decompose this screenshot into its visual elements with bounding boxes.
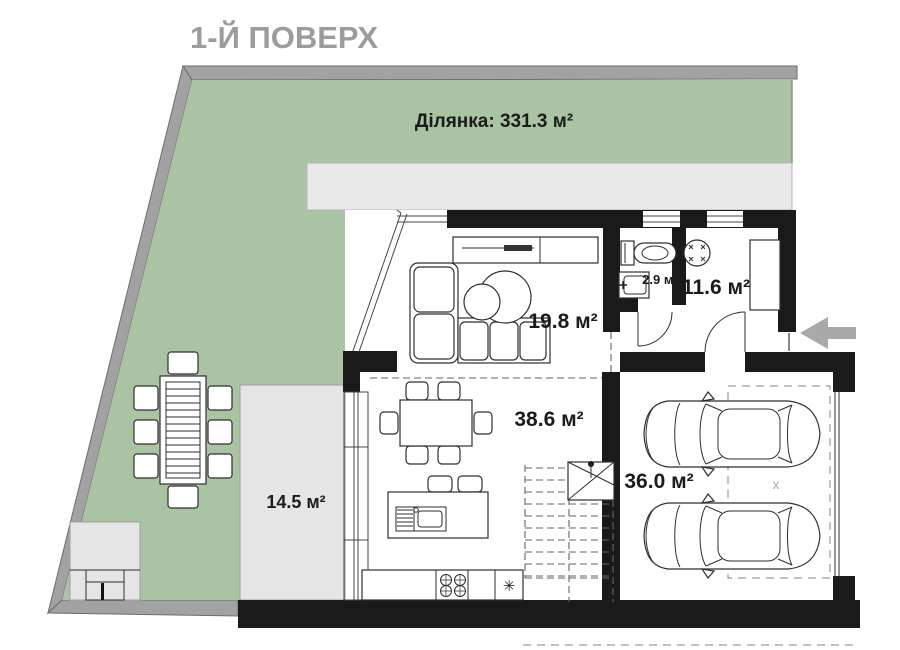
plot-area-label: Ділянка: 331.3 м² <box>415 111 573 132</box>
window <box>707 211 743 227</box>
living-area-label: 19.8 м² <box>528 310 597 333</box>
patio-post <box>101 583 104 600</box>
walkway-paving <box>307 163 792 210</box>
tv-icon <box>504 245 532 251</box>
tv-console <box>453 237 598 263</box>
terrace-area-label: 14.5 м² <box>266 492 325 512</box>
wardrobe <box>750 240 780 310</box>
outdoor-chair <box>134 420 158 444</box>
outdoor-chair <box>208 386 232 410</box>
kitchen-area-label: 38.6 м² <box>514 408 583 431</box>
bar-stool <box>428 476 452 492</box>
car-icon <box>644 494 820 578</box>
floor-plan: 1-Й ПОВЕРХ Ділянка: 331.3 м² <box>0 0 900 650</box>
wall-living-east <box>603 228 620 332</box>
outdoor-table <box>160 376 206 484</box>
wall-living-southwest <box>343 351 397 372</box>
coffee-table-small <box>464 284 500 320</box>
window <box>643 211 680 227</box>
wall-south <box>238 600 860 628</box>
outdoor-chair <box>134 454 158 478</box>
kitchen-counter: ✳ <box>362 570 523 600</box>
boundary-top <box>183 66 797 80</box>
boundary-bottom <box>48 600 238 616</box>
fridge-snowflake-icon: ✳ <box>503 578 516 595</box>
garage-area-label: 36.0 м² <box>624 470 693 493</box>
outdoor-chair <box>134 386 158 410</box>
car-icon <box>644 392 820 476</box>
garage-center-mark: x <box>773 476 780 492</box>
wc-area-label: 2.9 м² <box>642 272 678 287</box>
boiler-icon <box>684 240 710 266</box>
wall-north <box>447 210 796 228</box>
wall-wc-south <box>603 298 638 312</box>
bar-stool <box>458 476 482 492</box>
stair-landing-marker <box>568 461 614 500</box>
outdoor-chair <box>168 352 198 374</box>
wall-east-upper <box>778 228 796 332</box>
patio-corner <box>70 522 140 600</box>
outdoor-chair <box>168 486 198 508</box>
patio-paving <box>70 522 140 600</box>
entrance-arrow-icon <box>800 317 856 349</box>
dining-table <box>400 400 472 446</box>
wall-garage-east-top <box>833 352 855 392</box>
hall-area-label: 11.6 м² <box>682 276 750 299</box>
outdoor-chair <box>208 454 232 478</box>
door-gap-hall-garage <box>705 352 745 372</box>
outdoor-chair <box>208 420 232 444</box>
toilet-icon <box>621 241 676 265</box>
wall-dining-northwest <box>343 372 360 392</box>
page-title: 1-Й ПОВЕРХ <box>190 19 378 55</box>
